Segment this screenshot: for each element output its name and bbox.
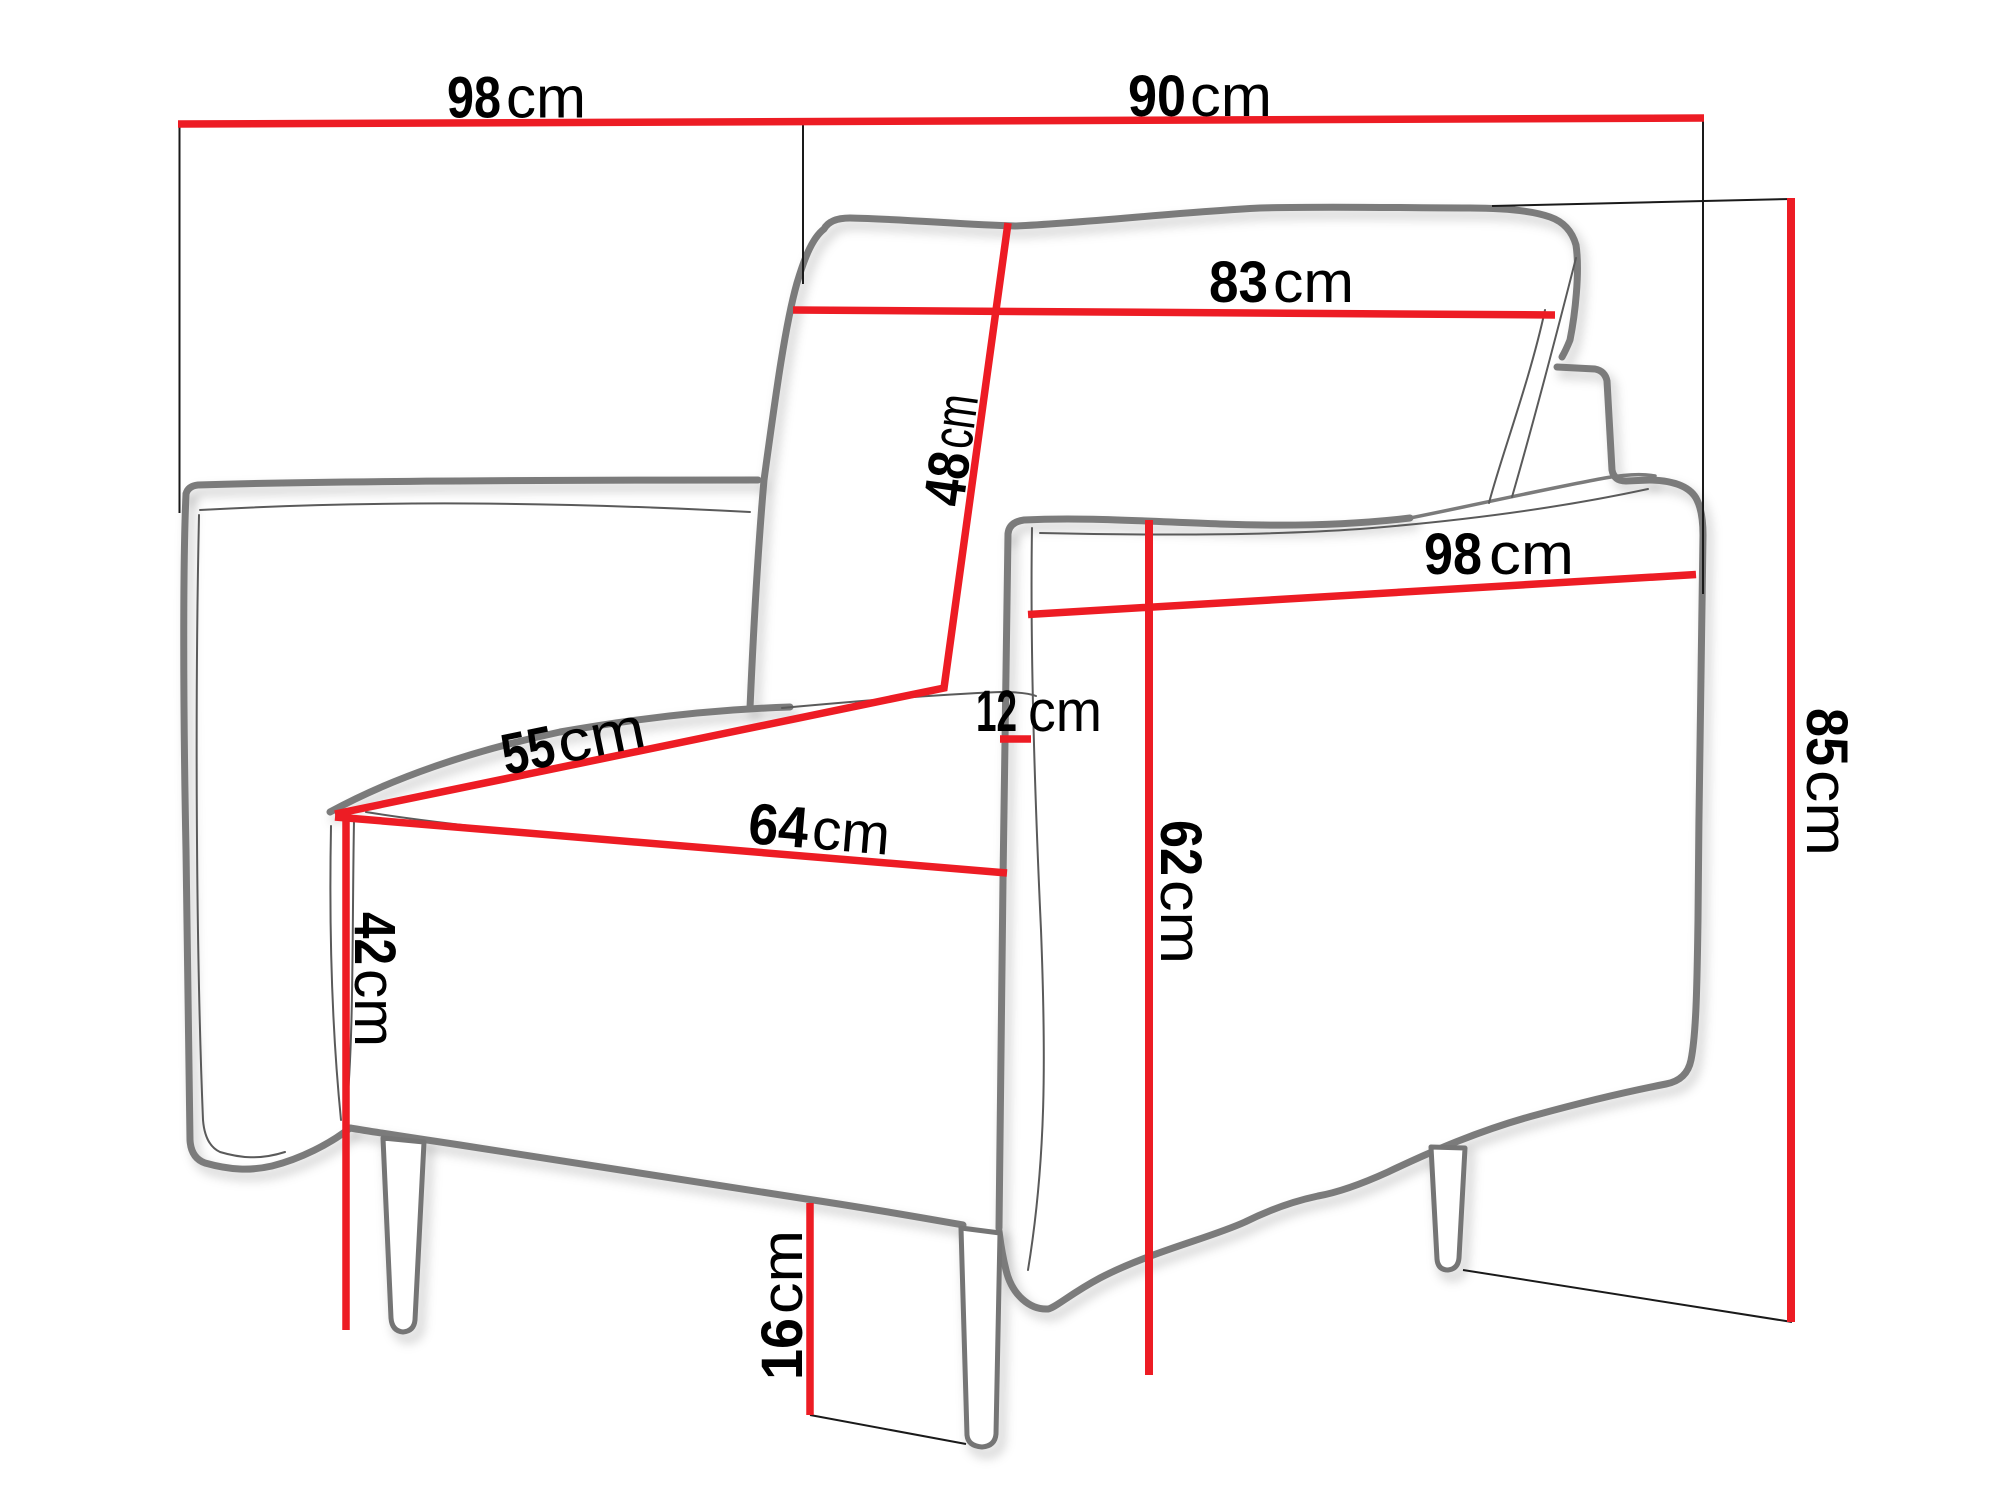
svg-text:98: 98: [447, 66, 501, 131]
svg-text:cm: cm: [1028, 679, 1102, 744]
svg-text:cm: cm: [1148, 880, 1213, 964]
svg-text:48: 48: [911, 447, 983, 509]
svg-text:42: 42: [342, 912, 407, 965]
svg-text:cm: cm: [342, 969, 407, 1047]
svg-text:12: 12: [976, 679, 1017, 744]
svg-text:cm: cm: [1190, 64, 1272, 129]
svg-text:98: 98: [1424, 522, 1482, 587]
svg-text:cm: cm: [1489, 522, 1574, 587]
svg-text:cm: cm: [750, 1230, 815, 1314]
svg-text:cm: cm: [1794, 770, 1859, 856]
svg-text:16: 16: [750, 1318, 815, 1380]
svg-text:cm: cm: [1273, 250, 1354, 315]
svg-text:cm: cm: [506, 66, 586, 131]
svg-text:cm: cm: [810, 796, 893, 867]
svg-text:83: 83: [1209, 250, 1268, 315]
svg-text:64: 64: [746, 791, 811, 861]
svg-text:62: 62: [1148, 820, 1213, 876]
svg-text:cm: cm: [919, 390, 991, 452]
svg-text:90: 90: [1128, 64, 1186, 129]
svg-text:85: 85: [1794, 708, 1859, 766]
